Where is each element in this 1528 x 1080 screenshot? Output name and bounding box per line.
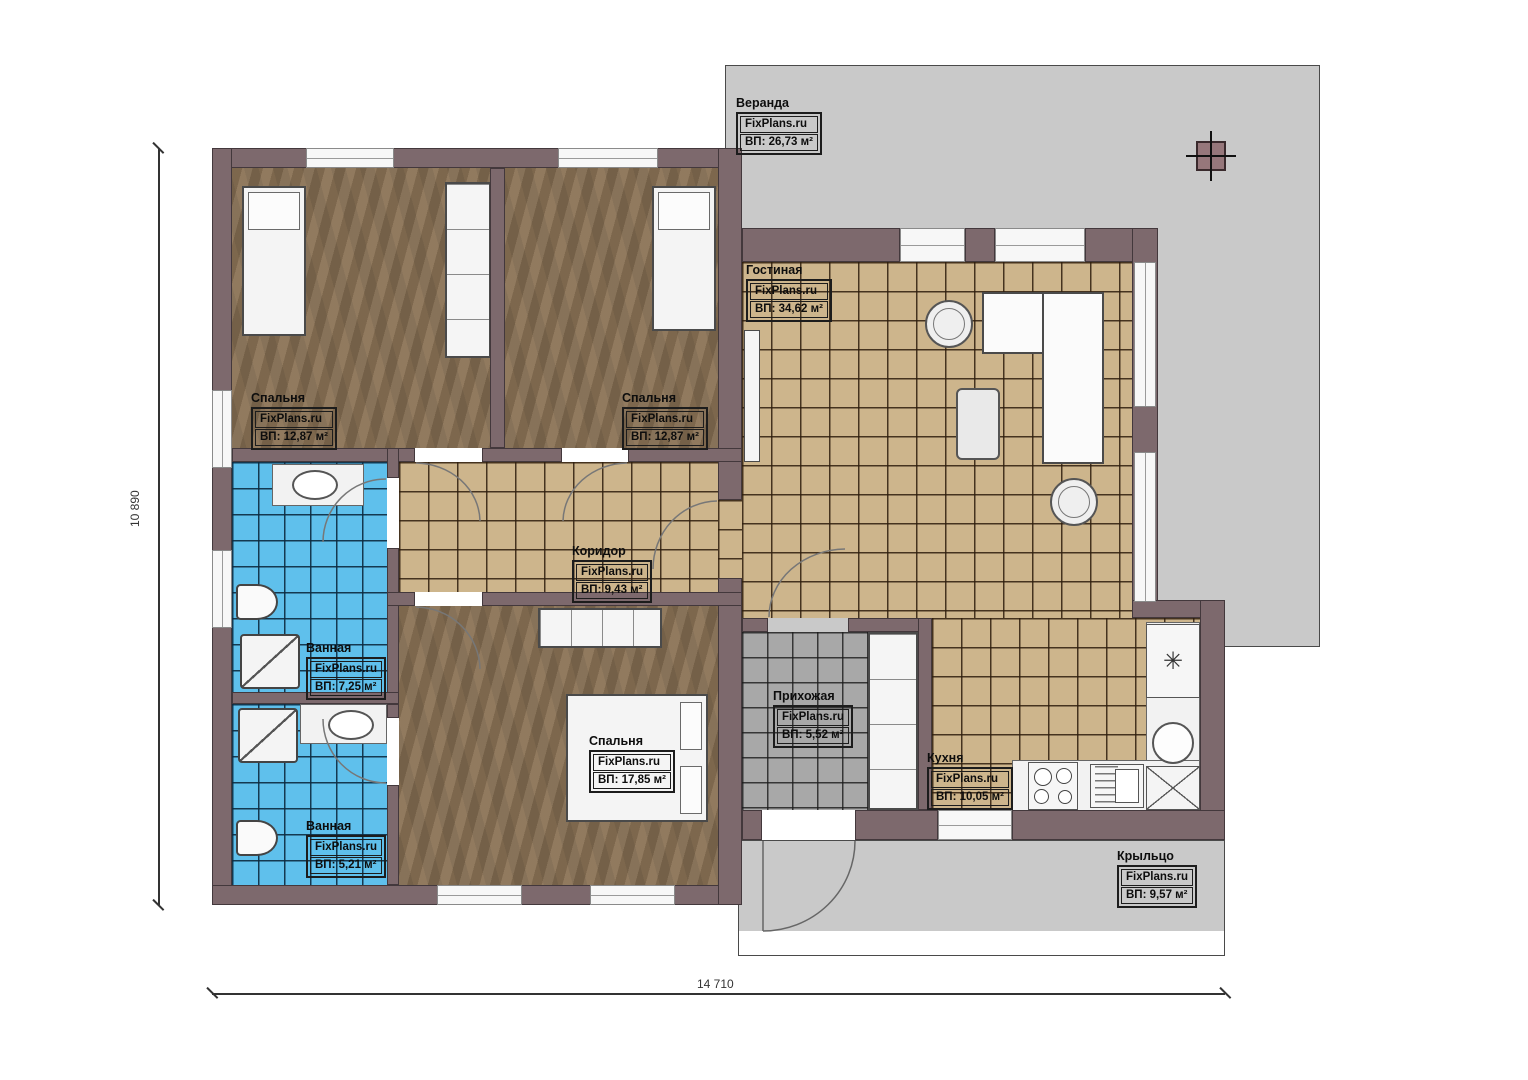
window-top-1 (306, 148, 394, 168)
kitchen-sink (1152, 722, 1194, 764)
door-arc-bedroom1 (415, 462, 481, 522)
closet-bedroom3 (538, 608, 662, 648)
window-top-2 (558, 148, 658, 168)
window-living-right-2 (1134, 452, 1156, 602)
area-row: ВП: 12,87 м² (626, 429, 704, 446)
dishwasher-door (1115, 769, 1139, 803)
burner (1056, 768, 1072, 784)
room-label-bathroom2: Ванная FixPlans.ru ВП: 5,21 м² (306, 819, 386, 878)
room-info-box: FixPlans.ru ВП: 5,52 м² (773, 705, 853, 748)
burner (1034, 768, 1052, 786)
wall-bathroom2-right-1 (387, 704, 399, 718)
room-info-box: FixPlans.ru ВП: 10,05 м² (927, 767, 1013, 810)
room-name: Кухня (927, 751, 1013, 765)
tv-console (744, 330, 760, 462)
room-info-box: FixPlans.ru ВП: 34,62 м² (746, 279, 832, 322)
window-living-top-2 (995, 228, 1085, 262)
armchair-round-1 (925, 300, 973, 348)
bathroom2-shower (238, 708, 298, 763)
area-row: ВП: 12,87 м² (255, 429, 333, 446)
room-info-box: FixPlans.ru ВП: 12,87 м² (251, 407, 337, 450)
area-row: ВП: 9,43 м² (576, 582, 648, 599)
room-info-box: FixPlans.ru ВП: 12,87 м² (622, 407, 708, 450)
window-left-1 (212, 390, 232, 468)
room-label-corridor: Коридор FixPlans.ru ВП: 9,43 м² (572, 544, 652, 603)
brand-row: FixPlans.ru (593, 754, 671, 771)
room-label-kitchen: Кухня FixPlans.ru ВП: 10,05 м² (927, 751, 1013, 810)
room-label-porch: Крыльцо FixPlans.ru ВП: 9,57 м² (1117, 849, 1197, 908)
area-row: ВП: 5,21 м² (310, 857, 382, 874)
room-name: Ванная (306, 819, 386, 833)
window-bottom-2 (590, 885, 675, 905)
area-row: ВП: 10,05 м² (931, 789, 1009, 806)
sofa-vertical-section (1042, 292, 1104, 464)
wall-top-right-2 (965, 228, 995, 262)
wall-top-right-1 (742, 228, 900, 262)
brand-row: FixPlans.ru (931, 771, 1009, 788)
room-label-living: Гостиная FixPlans.ru ВП: 34,62 м² (746, 263, 832, 322)
area-row: ВП: 7,25 м² (310, 679, 382, 696)
room-name: Спальня (589, 734, 675, 748)
dimension-width-label: 14 710 (697, 977, 734, 991)
room-name: Веранда (736, 96, 822, 110)
wall-top-left-block (212, 148, 742, 168)
area-row: ВП: 17,85 м² (593, 772, 671, 789)
brand-row: FixPlans.ru (310, 839, 382, 856)
wall-hallway-top-1 (742, 618, 768, 632)
wardrobe-between-bedrooms (445, 182, 491, 358)
room-info-box: FixPlans.ru ВП: 9,43 м² (572, 560, 652, 603)
room-name: Ванная (306, 641, 386, 655)
coffee-table (956, 388, 1000, 460)
brand-row: FixPlans.ru (576, 564, 648, 581)
wall-corridor-top-3 (628, 448, 742, 462)
wall-bathroom1-right-2 (387, 548, 399, 704)
room-name: Спальня (622, 391, 708, 405)
wall-bottom-right-2 (855, 810, 938, 840)
wall-left (212, 148, 232, 905)
area-row: ВП: 5,52 м² (777, 727, 849, 744)
door-arc-corridor-living (652, 500, 718, 570)
door-arc-bathroom1 (322, 478, 387, 543)
brand-row: FixPlans.ru (255, 411, 333, 428)
door-arc-bedroom2 (562, 462, 628, 522)
brand-row: FixPlans.ru (1121, 869, 1193, 886)
brand-row: FixPlans.ru (777, 709, 849, 726)
area-row: ВП: 34,62 м² (750, 301, 828, 318)
corridor-opening-floor (718, 500, 742, 578)
room-info-box: FixPlans.ru ВП: 9,57 м² (1117, 865, 1197, 908)
room-label-bathroom1: Ванная FixPlans.ru ВП: 7,25 м² (306, 641, 386, 700)
room-name: Крыльцо (1117, 849, 1197, 863)
room-label-bedroom1: Спальня FixPlans.ru ВП: 12,87 м² (251, 391, 337, 450)
room-label-bedroom2: Спальня FixPlans.ru ВП: 12,87 м² (622, 391, 708, 450)
pillow (680, 766, 702, 814)
dimension-height-label: 10 890 (128, 490, 142, 527)
column-crosshair-v (1210, 131, 1212, 181)
room-label-bedroom3: Спальня FixPlans.ru ВП: 17,85 м² (589, 734, 675, 793)
room-name: Прихожая (773, 689, 853, 703)
bed-single-2 (652, 186, 716, 331)
pillow (248, 192, 300, 230)
brand-row: FixPlans.ru (740, 116, 818, 133)
wall-bottom-right-1 (742, 810, 762, 840)
bathroom1-toilet (236, 584, 278, 620)
door-arc-entrance (762, 840, 856, 932)
pillow (658, 192, 710, 230)
dimension-line-horizontal (212, 993, 1225, 995)
room-info-box: FixPlans.ru ВП: 17,85 м² (589, 750, 675, 793)
area-row: ВП: 9,57 м² (1121, 887, 1193, 904)
pillow (680, 702, 702, 750)
window-left-2 (212, 550, 232, 628)
window-living-top-1 (900, 228, 965, 262)
room-info-box: FixPlans.ru ВП: 5,21 м² (306, 835, 386, 878)
bathroom2-toilet (236, 820, 278, 856)
area-row: ВП: 26,73 м² (740, 134, 818, 151)
fridge-snowflake-icon: ✳ (1146, 624, 1200, 698)
brand-row: FixPlans.ru (750, 283, 828, 300)
room-name: Гостиная (746, 263, 832, 277)
wall-spine-lower (718, 578, 742, 905)
wall-bathroom1-right-1 (387, 448, 399, 478)
brand-row: FixPlans.ru (310, 661, 382, 678)
room-name: Спальня (251, 391, 337, 405)
window-living-right-1 (1134, 262, 1156, 407)
door-arc-bathroom2 (322, 718, 387, 784)
wall-kitchen-right (1200, 600, 1225, 840)
door-arc-hallway (768, 548, 846, 618)
bed-single-1 (242, 186, 306, 336)
dishwasher (1090, 764, 1144, 808)
bathroom1-shower (240, 634, 300, 689)
hallway-wardrobe (868, 632, 918, 810)
wall-bathroom2-right-2 (387, 785, 399, 885)
floor-plan-canvas: ✳ (0, 0, 1528, 1080)
kitchen-corner-cabinet (1146, 766, 1200, 810)
armchair-round-2 (1050, 478, 1098, 526)
burner (1058, 790, 1072, 804)
room-name: Коридор (572, 544, 652, 558)
window-kitchen-bottom (938, 810, 1012, 840)
burner (1034, 789, 1049, 804)
room-label-hallway: Прихожая FixPlans.ru ВП: 5,52 м² (773, 689, 853, 748)
stove (1028, 762, 1078, 810)
door-arc-bedroom3 (415, 606, 481, 670)
window-bottom-1 (437, 885, 522, 905)
room-label-veranda: Веранда FixPlans.ru ВП: 26,73 м² (736, 96, 822, 155)
room-info-box: FixPlans.ru ВП: 7,25 м² (306, 657, 386, 700)
wall-bottom-right-3 (1012, 810, 1225, 840)
room-info-box: FixPlans.ru ВП: 26,73 м² (736, 112, 822, 155)
dimension-line-vertical (158, 148, 160, 905)
wall-corridor-bottom-1 (387, 592, 415, 606)
snowflake-glyph: ✳ (1163, 647, 1183, 676)
wall-corridor-top-2 (482, 448, 562, 462)
wall-between-bedrooms (490, 168, 505, 448)
brand-row: FixPlans.ru (626, 411, 704, 428)
